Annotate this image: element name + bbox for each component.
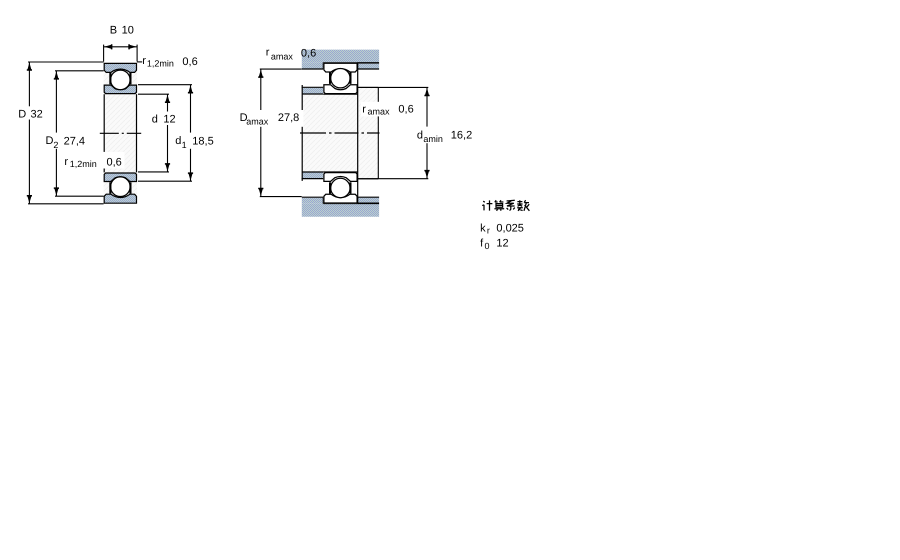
svg-text:r: r [142,55,146,67]
svg-text:d: d [152,114,158,126]
svg-text:r: r [64,156,68,168]
svg-text:D: D [46,135,54,147]
svg-text:18,5: 18,5 [192,135,213,147]
svg-text:32: 32 [31,108,43,120]
svg-text:B: B [110,25,117,37]
svg-text:2: 2 [53,140,58,150]
svg-text:0,6: 0,6 [398,103,413,115]
svg-text:r: r [362,103,366,115]
svg-text:27,4: 27,4 [64,135,85,147]
svg-text:1,2min: 1,2min [70,159,97,169]
svg-text:amin: amin [423,134,443,144]
svg-text:12: 12 [496,238,508,250]
svg-text:amax: amax [368,107,391,117]
svg-text:0,025: 0,025 [496,222,524,234]
svg-text:0,6: 0,6 [107,156,122,168]
svg-text:amax: amax [271,52,294,62]
svg-text:0,6: 0,6 [301,48,316,60]
svg-text:0: 0 [485,241,490,251]
svg-text:d: d [417,129,423,141]
svg-text:12: 12 [163,114,175,126]
svg-text:d: d [175,135,181,147]
svg-text:16,2: 16,2 [451,130,472,142]
svg-text:27,8: 27,8 [278,112,299,124]
svg-text:D: D [18,108,26,120]
svg-text:k: k [480,222,486,234]
svg-text:r: r [487,226,490,236]
svg-text:10: 10 [122,25,134,37]
svg-text:amax: amax [246,116,269,126]
svg-text:0,6: 0,6 [182,56,197,68]
svg-text:1: 1 [182,140,187,150]
svg-text:r: r [266,46,270,58]
svg-text:1,2min: 1,2min [147,58,174,68]
